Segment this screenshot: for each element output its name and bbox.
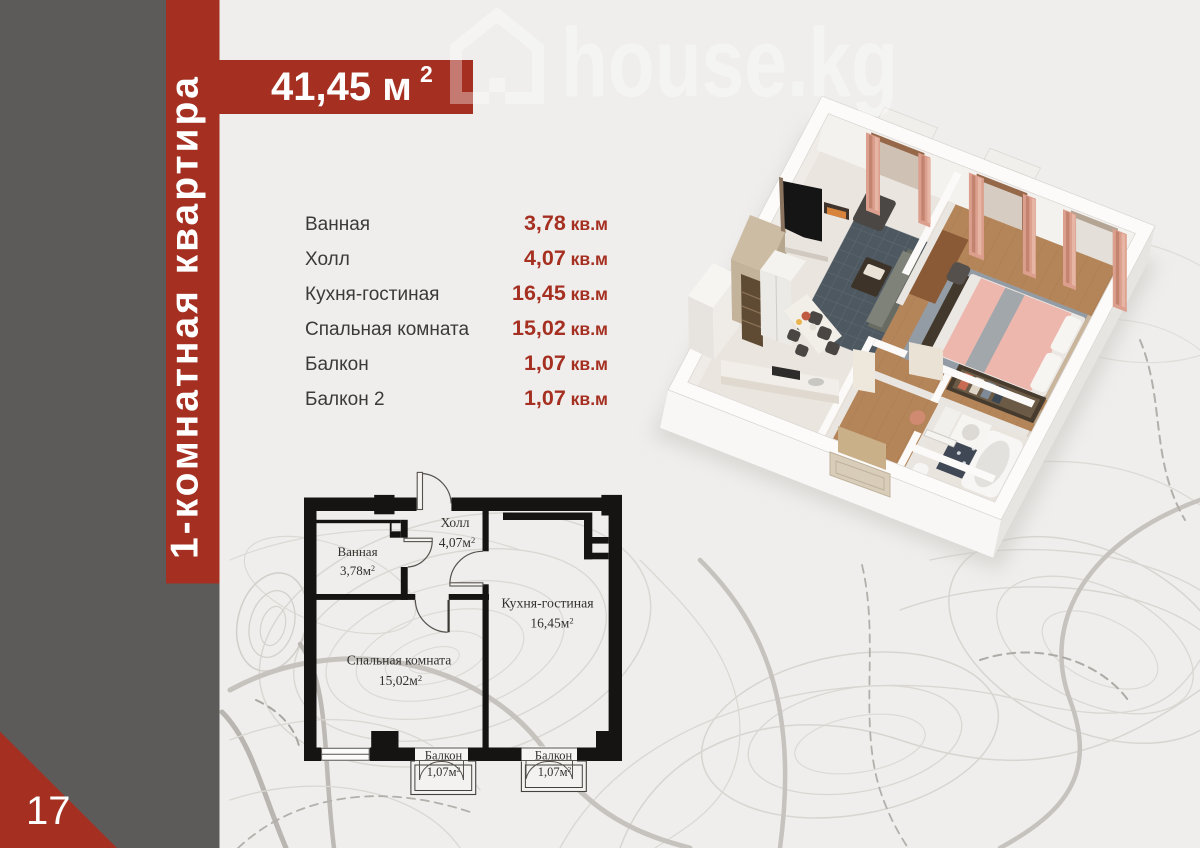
svg-text:1,07 кв.м: 1,07 кв.м	[524, 386, 608, 410]
svg-text:house.kg: house.kg	[561, 8, 898, 117]
svg-text:15,02 кв.м: 15,02 кв.м	[512, 316, 608, 340]
svg-text:Холл: Холл	[305, 249, 350, 270]
svg-text:Балкон: Балкон	[305, 354, 369, 375]
svg-text:1,07 кв.м: 1,07 кв.м	[524, 351, 608, 375]
svg-text:Спальная комната: Спальная комната	[305, 319, 469, 340]
svg-text:Кухня-гостиная: Кухня-гостиная	[305, 284, 439, 305]
svg-text:Ванная: Ванная	[305, 214, 370, 235]
svg-text:Холл: Холл	[441, 515, 470, 530]
svg-text:1,07м2: 1,07м2	[538, 765, 572, 779]
svg-text:Балкон: Балкон	[425, 749, 463, 763]
svg-text:Балкон: Балкон	[535, 749, 573, 763]
svg-text:3,78м2: 3,78м2	[340, 563, 375, 578]
svg-text:4,07 кв.м: 4,07 кв.м	[524, 246, 608, 270]
svg-text:15,02м2: 15,02м2	[379, 673, 422, 688]
svg-text:3,78 кв.м: 3,78 кв.м	[524, 211, 608, 235]
svg-text:Ванная: Ванная	[337, 544, 377, 559]
svg-text:2: 2	[420, 61, 433, 87]
svg-text:16,45 кв.м: 16,45 кв.м	[512, 281, 608, 305]
svg-text:1-комнатная квартира: 1-комнатная квартира	[164, 77, 207, 559]
svg-text:Кухня-гостиная: Кухня-гостиная	[501, 596, 594, 611]
svg-text:16,45м2: 16,45м2	[530, 616, 573, 631]
svg-text:41,45 м: 41,45 м	[271, 65, 412, 109]
svg-text:1,07м2: 1,07м2	[427, 765, 461, 779]
svg-text:4,07м2: 4,07м2	[439, 535, 475, 550]
svg-text:17: 17	[26, 789, 71, 833]
svg-text:Спальная комната: Спальная комната	[347, 653, 452, 668]
svg-text:Балкон 2: Балкон 2	[305, 389, 385, 410]
